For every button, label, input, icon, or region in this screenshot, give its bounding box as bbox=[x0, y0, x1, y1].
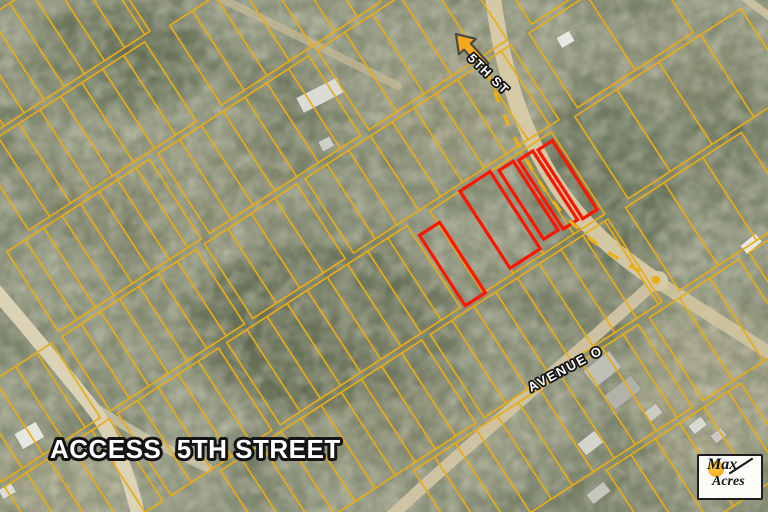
aerial-parcel-map: 5TH ST AVENUE O ACCESS 5TH STREET Max Ac… bbox=[0, 0, 768, 512]
logo-word-acres: Acres bbox=[712, 474, 745, 490]
satellite-map-canvas: 5TH ST AVENUE O ACCESS 5TH STREET bbox=[0, 0, 768, 512]
logo-word-max: Max bbox=[707, 456, 737, 474]
access-caption: ACCESS 5TH STREET bbox=[50, 434, 341, 464]
max-acres-logo: Max Acres bbox=[697, 454, 763, 500]
